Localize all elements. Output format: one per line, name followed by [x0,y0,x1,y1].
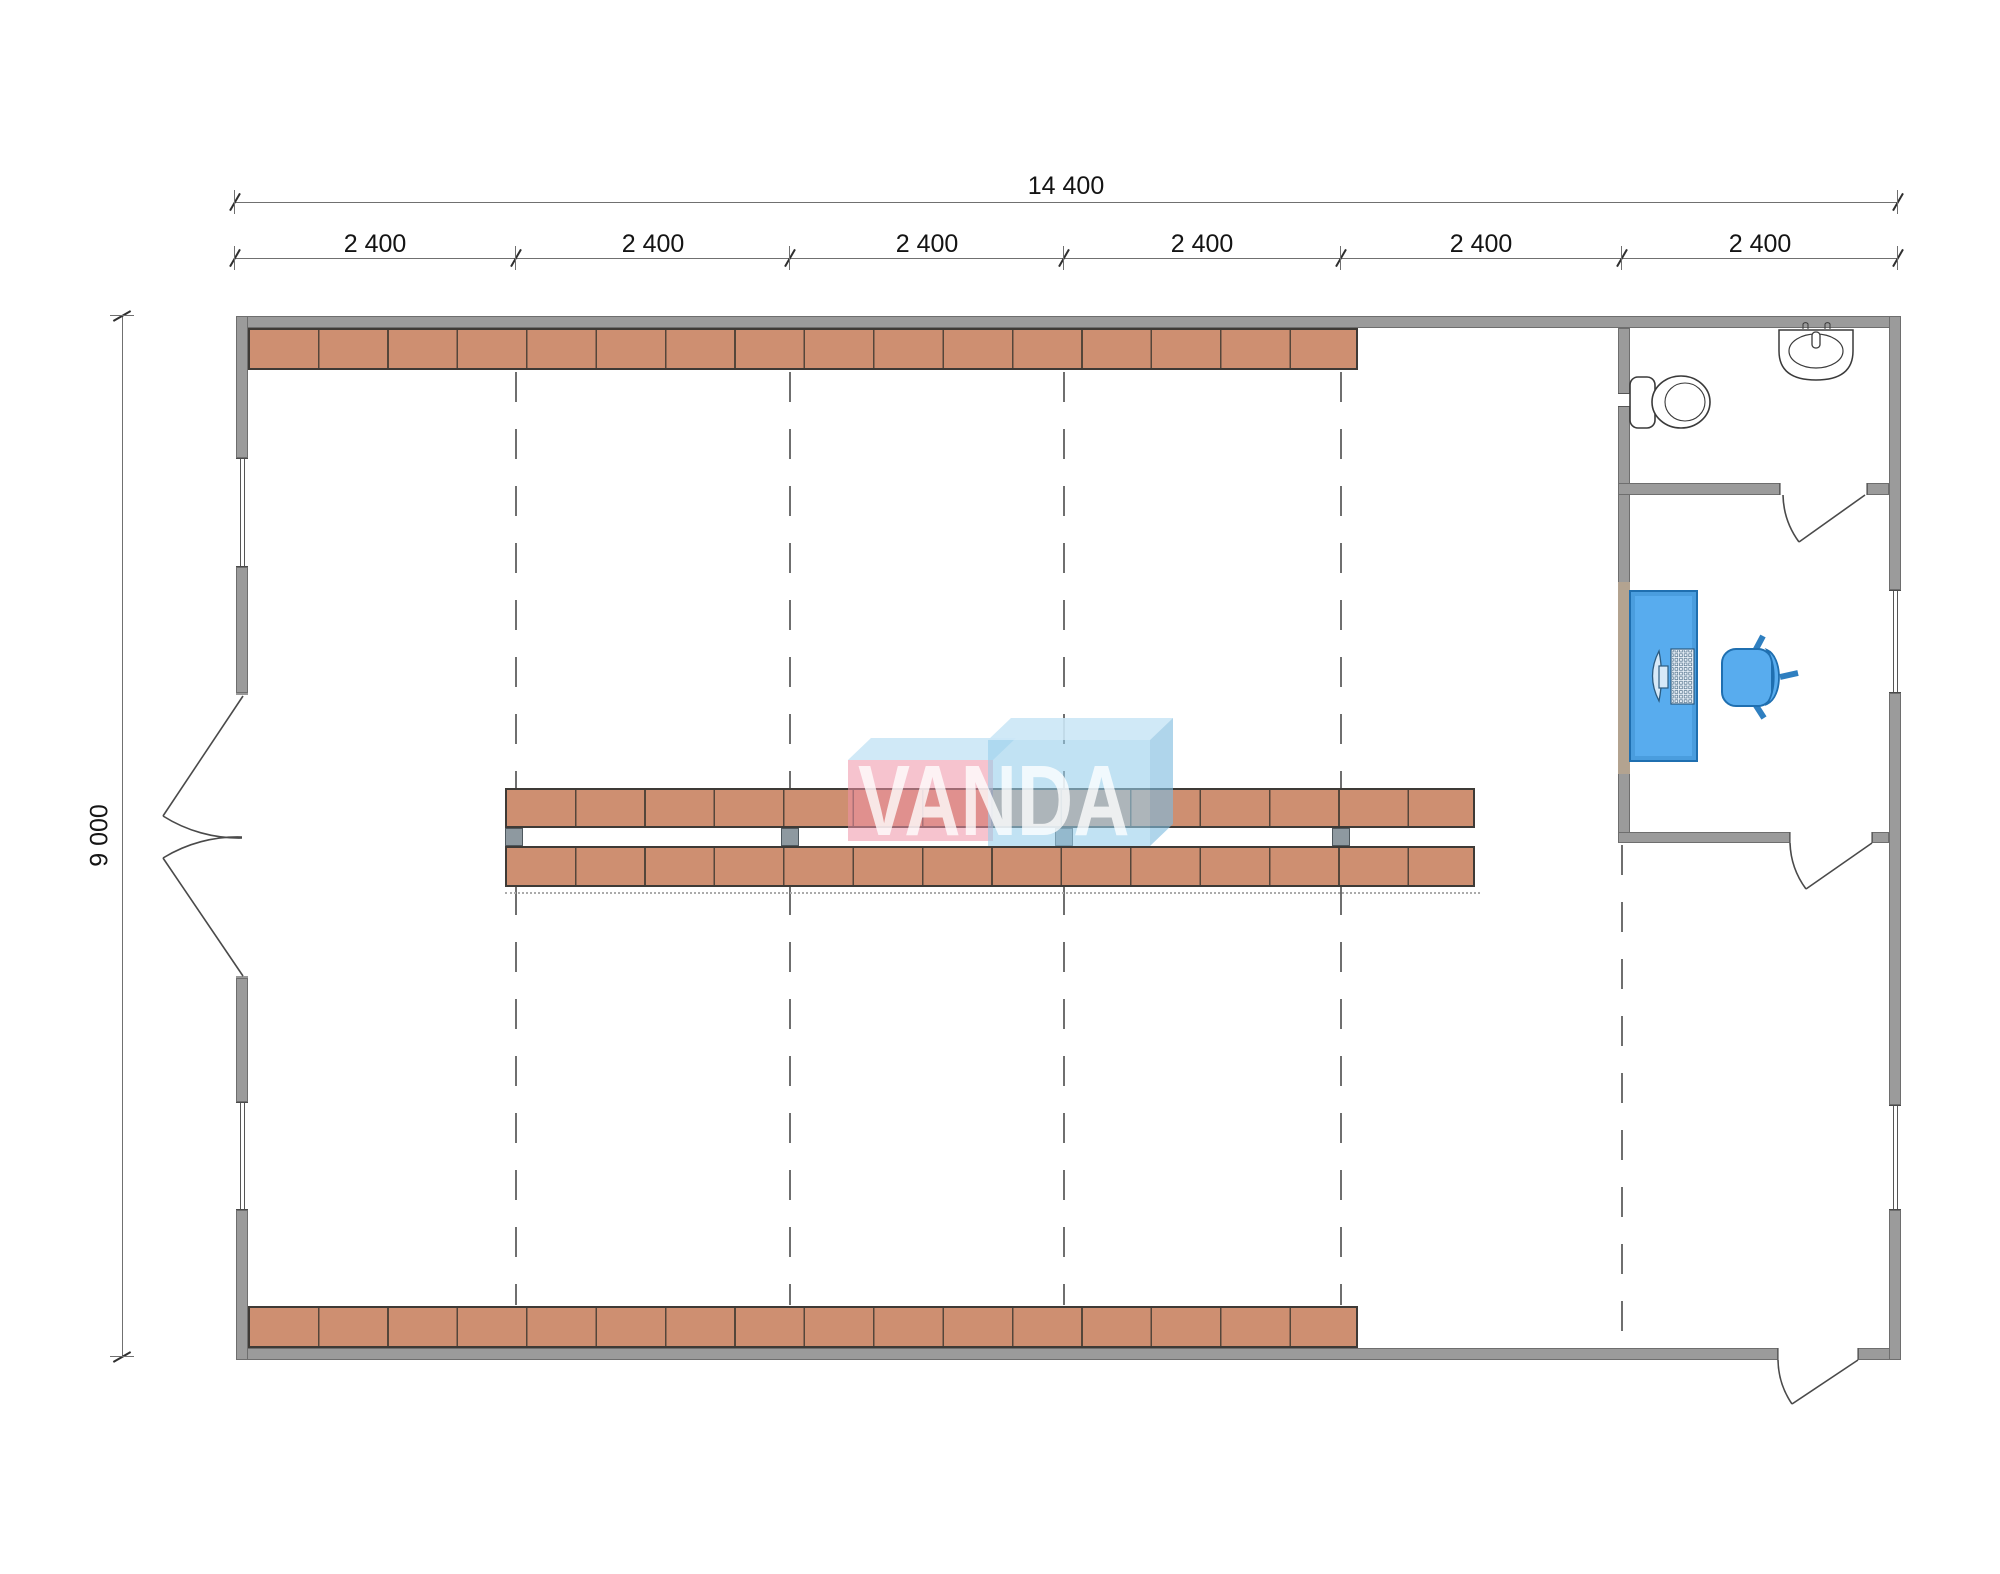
shelf-edge-dotted-line [505,892,1480,894]
wall-right-segment [1889,693,1901,1105]
dimension-label-bay: 2 400 [1710,230,1810,259]
dimension-tick [1897,246,1898,270]
dimension-label-bay: 2 400 [1152,230,1252,259]
entrance-double-door [163,696,243,976]
dimension-line-bays [235,258,1898,259]
logo-text: VANDA [858,751,1130,851]
window-left-upper [236,458,248,567]
dimension-label-total-height: 9 000 [86,776,115,896]
wall-service-break [1618,393,1630,407]
wall-left-segment [236,978,248,1102]
wall-right-segment [1889,316,1901,590]
column-post [1332,828,1350,846]
dimension-tick [789,246,790,270]
dimension-line-total-height [122,316,123,1357]
dimension-label-bay: 2 400 [325,230,425,259]
dimension-tick [234,246,235,270]
dimension-label-total-width: 14 400 [1006,172,1126,201]
sink-icon [1779,323,1853,380]
wall-right-segment [1889,1210,1901,1360]
rear-exit-door [1778,1360,1858,1404]
bathroom-door [1783,495,1865,542]
wall-left-segment [236,316,248,458]
shelf-rack-bottom [248,1306,1358,1348]
window-left-lower [236,1102,248,1210]
dimension-tick [110,1356,134,1357]
grid-axis-line [1621,845,1623,1346]
floor-plan-canvas: 14 400 2 400 2 400 2 400 2 400 2 400 2 4… [0,0,2000,1574]
dimension-label-bay: 2 400 [877,230,977,259]
dimension-tick [110,315,134,316]
office-desk [1629,590,1698,762]
column-post [781,828,799,846]
dimension-line-total-width [235,202,1898,203]
office-chair-icon [1722,636,1798,718]
dimension-tick [1063,246,1064,270]
office-door [1790,843,1872,889]
dimension-tick [1621,246,1622,270]
dimension-tick [515,246,516,270]
wall-bottom-left [236,1348,1778,1360]
wall-left-segment [236,1210,248,1360]
logo-box-blue-side-face [1150,718,1173,846]
dimension-tick [1897,190,1898,214]
column-post [505,828,523,846]
dimension-label-bay: 2 400 [1431,230,1531,259]
wall-left-segment [236,567,248,693]
shelf-rack-top [248,328,1358,370]
wall-office-bottom-stub [1872,832,1889,843]
wall-bathroom-bottom [1618,483,1780,495]
dimension-tick [234,190,235,214]
logo-box-blue-top-face [988,718,1173,740]
dimension-tick [1340,246,1341,270]
dimension-label-bay: 2 400 [603,230,703,259]
window-right-office [1889,590,1901,693]
wall-office-bottom [1618,832,1790,843]
wall-top [236,316,1901,328]
wall-bathroom-bottom-stub [1867,483,1889,495]
toilet-icon [1630,376,1710,428]
window-right-lower [1889,1105,1901,1210]
